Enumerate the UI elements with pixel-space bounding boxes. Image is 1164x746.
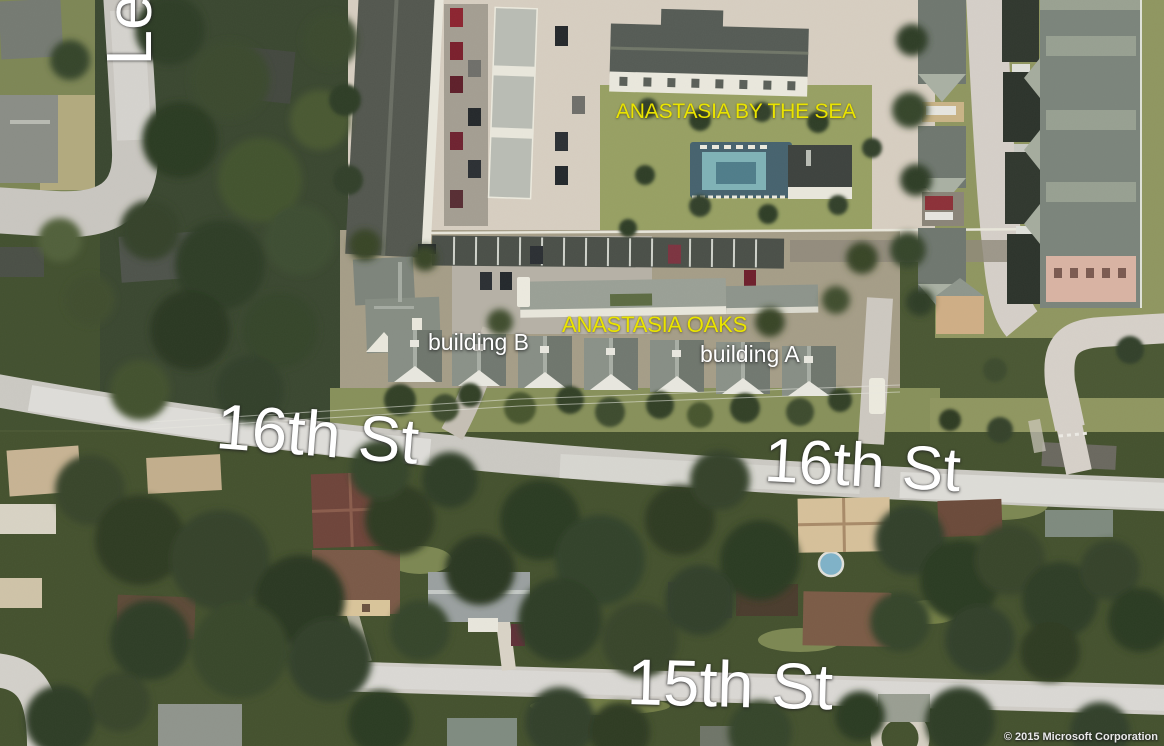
copyright-attribution: © 2015 Microsoft Corporation [1004, 731, 1158, 743]
street-label-16th-west: 16th St [214, 394, 421, 474]
street-label-16th-east: 16th St [763, 430, 962, 502]
complex-label-anastasia-by-the-sea: ANASTASIA BY THE SEA [616, 101, 856, 122]
building-a-label: building A [700, 343, 800, 366]
street-label-15th: 15th St [626, 649, 834, 719]
street-label-le: Le [97, 0, 161, 66]
photo-grain [0, 0, 1164, 746]
map-viewport[interactable]: Le ANASTASIA BY THE SEA ANASTASIA OAKS b… [0, 0, 1164, 746]
building-b-label: building B [428, 331, 529, 354]
complex-label-anastasia-oaks: ANASTASIA OAKS [562, 314, 747, 336]
aerial-imagery [0, 0, 1164, 746]
